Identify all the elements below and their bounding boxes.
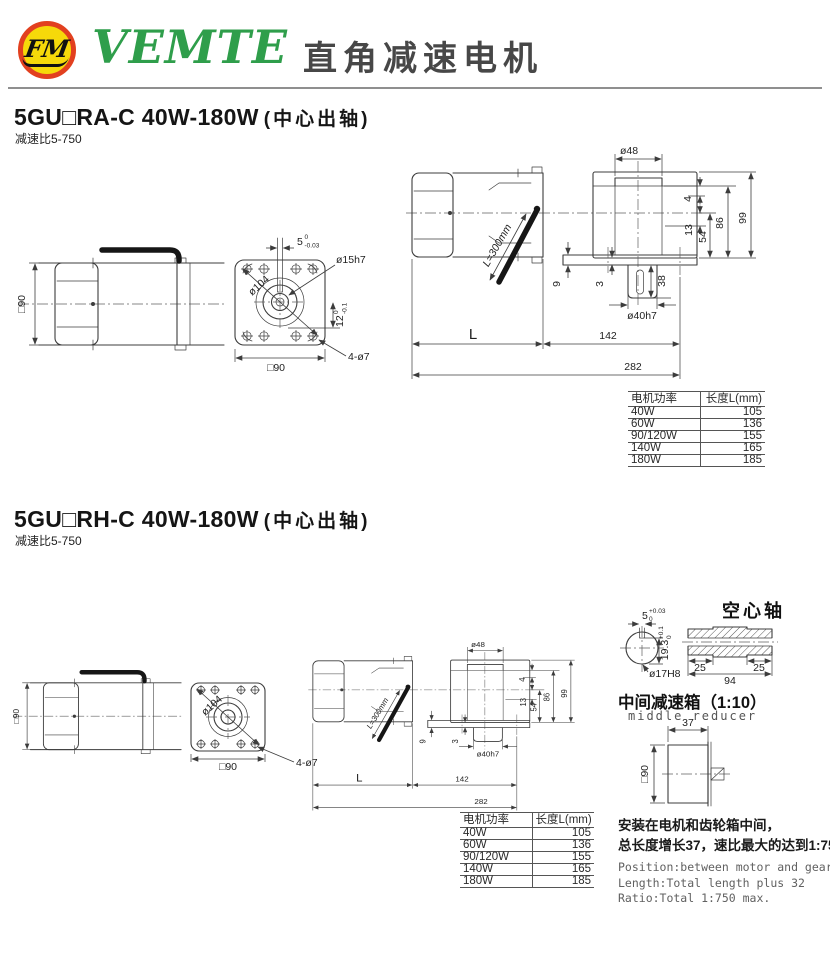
- s1-gearmotor-top-view: L=300mm ø48 4 13 54 86 99 9: [403, 143, 830, 388]
- cell-power: 90/120W: [460, 852, 532, 864]
- table-row: 60W136: [460, 840, 594, 852]
- table-header-row: 电机功率 长度L(mm): [628, 392, 765, 407]
- key-width-dimension: 5 0 -0.03: [266, 234, 320, 250]
- dim-13: 13: [519, 698, 528, 706]
- section1-shaft-type: (中心出轴): [264, 109, 371, 130]
- brand-logo: FM: [18, 21, 76, 79]
- cell-power: 180W: [460, 876, 532, 888]
- cell-length: 185: [700, 455, 765, 467]
- dim-99: 99: [560, 689, 569, 697]
- right-height-dimensions: 4 13 54 86 99: [664, 172, 756, 258]
- flange-size-dimension: □90: [191, 754, 265, 773]
- length-dimensions: L 142 282: [313, 723, 517, 810]
- table-row: 90/120W155: [628, 431, 765, 443]
- dim-94: 94: [724, 675, 736, 687]
- boss-dia-dimension: ø48: [615, 145, 662, 176]
- dim-54: 54: [697, 231, 709, 243]
- dim-4: 4: [682, 196, 694, 202]
- dim-86: 86: [714, 217, 726, 229]
- dim-key-height-tol-low: -0.1: [342, 302, 349, 314]
- power-cable: [379, 685, 410, 740]
- dim-25-right: 25: [753, 662, 765, 674]
- reducer-notes: 安装在电机和齿轮箱中间， 总长度增长37，速比最大的达到1:750 Positi…: [618, 816, 830, 907]
- dim-142: 142: [599, 330, 617, 342]
- cell-power: 90/120W: [628, 431, 700, 443]
- cell-length: 136: [700, 419, 765, 431]
- dim-key-depth-tol-up: +0.1: [658, 626, 665, 639]
- dim-25-left: 25: [694, 662, 706, 674]
- dim-key-width: 5: [642, 610, 648, 622]
- note-cn-2: 总长度增长37，速比最大的达到1:750: [618, 836, 830, 856]
- hollow-shaft-view: 5 +0.03 0 19.3 +0.1 0 ø17H8 25: [616, 588, 830, 688]
- cell-power: 40W: [628, 407, 700, 419]
- cell-power: 140W: [628, 443, 700, 455]
- cell-power: 40W: [460, 828, 532, 840]
- boss-dia-dimension: ø48: [467, 640, 503, 663]
- dim-shaft-dia: ø15h7: [336, 254, 366, 266]
- section2-title: 5GU□RH-C 40W-180W(中心出轴): [14, 506, 370, 533]
- note-en-2: Length:Total length plus 32: [618, 876, 830, 892]
- mount-holes-label: 4-ø7: [319, 340, 370, 363]
- col-power: 电机功率: [460, 813, 532, 828]
- note-en-3: Ratio:Total 1:750 max.: [618, 891, 830, 907]
- s1-length-table: 电机功率 长度L(mm) 40W105 60W136 90/120W155 14…: [628, 391, 765, 467]
- section2-shaft-type: (中心出轴): [264, 511, 371, 532]
- dim-L: L: [469, 326, 477, 343]
- section2-model: 5GU□RH-C 40W-180W: [14, 506, 259, 532]
- dim-frame-size: □90: [11, 709, 21, 724]
- logo-monogram: FM: [21, 34, 72, 67]
- s1-motor-side-view: □90: [14, 235, 230, 370]
- dim-shaft-dia: ø40h7: [627, 310, 657, 322]
- dim-shaft-dia: ø40h7: [477, 750, 500, 759]
- brand-name: VEMTE: [92, 20, 288, 74]
- dim-3: 3: [594, 281, 606, 287]
- dim-9: 9: [418, 739, 427, 743]
- dim-37: 37: [682, 717, 694, 729]
- table-row: 140W165: [628, 443, 765, 455]
- dim-key-height-tol-up: 0: [333, 310, 340, 314]
- table-row: 90/120W155: [460, 852, 594, 864]
- dim-frame-size: □90: [16, 295, 28, 313]
- dim-282: 282: [474, 797, 487, 806]
- dim-key-depth: 19.3: [659, 640, 671, 661]
- dim-bolt-circle: ø104: [246, 273, 272, 298]
- flange-size-dimension: □90: [235, 349, 325, 374]
- motor-outline: [13, 679, 183, 754]
- cell-length: 105: [532, 828, 594, 840]
- dim-key-width-tol-low: -0.03: [305, 243, 320, 250]
- dim-38: 38: [656, 275, 668, 287]
- table-row: 40W105: [628, 407, 765, 419]
- cell-length: 165: [700, 443, 765, 455]
- col-length: 长度L(mm): [700, 392, 765, 407]
- col-power: 电机功率: [628, 392, 700, 407]
- dim-flange-size: □90: [219, 761, 237, 773]
- s2-motor-side-view: □90: [10, 660, 186, 770]
- dim-key-height: 12: [334, 315, 346, 327]
- reducer-frame-dimension: □90: [639, 745, 665, 803]
- section1-title: 5GU□RA-C 40W-180W(中心出轴): [14, 104, 370, 131]
- reducer-outline: [662, 742, 732, 806]
- cell-length: 105: [700, 407, 765, 419]
- table-row: 140W165: [460, 864, 594, 876]
- dim-86: 86: [542, 693, 551, 701]
- dim-flange-size: □90: [267, 362, 285, 374]
- table-row: 180W185: [460, 876, 594, 888]
- table-row: 60W136: [628, 419, 765, 431]
- dim-4: 4: [518, 677, 527, 682]
- cell-length: 155: [532, 852, 594, 864]
- dim-key-width-tol-up: +0.03: [649, 608, 666, 615]
- s2-gearmotor-top-view: L=300mm ø48 4 13 54 86 99 9: [306, 639, 631, 817]
- cell-power: 60W: [628, 419, 700, 431]
- dim-99: 99: [737, 212, 749, 224]
- dim-bore-dia: ø17H8: [649, 668, 681, 680]
- middle-reducer-view: 37 □90: [640, 713, 790, 810]
- key-height-dimension: 12 0 -0.1: [288, 302, 349, 328]
- table-row: 40W105: [460, 828, 594, 840]
- motor-gearbox-outline: [308, 652, 536, 749]
- table-header-row: 电机功率 长度L(mm): [460, 813, 594, 828]
- cell-length: 185: [532, 876, 594, 888]
- dim-L: L: [356, 773, 362, 785]
- note-en-1: Position:between motor and gearbox: [618, 860, 830, 876]
- page-title: 直角减速电机: [303, 31, 543, 80]
- right-height-dimensions: 4 13 54 86 99: [505, 660, 575, 722]
- col-length: 长度L(mm): [532, 813, 594, 828]
- cell-length: 165: [532, 864, 594, 876]
- dim-frame-size: □90: [639, 765, 651, 783]
- section1-model: 5GU□RA-C 40W-180W: [14, 104, 259, 130]
- s1-flange-front-view: 5 0 -0.03 ø15h7 ø104 □90 12 0 -0.1: [230, 228, 415, 376]
- power-cable: [102, 250, 179, 261]
- dim-282: 282: [624, 361, 642, 373]
- dim-key-width-tol-low: 0: [649, 616, 653, 623]
- s2-length-table: 电机功率 长度L(mm) 40W105 60W136 90/120W155 14…: [460, 812, 594, 888]
- dim-13: 13: [683, 224, 695, 236]
- table-row: 180W185: [628, 455, 765, 467]
- shaft-dimensions: ø40h7: [459, 739, 517, 758]
- cell-power: 180W: [628, 455, 700, 467]
- reducer-width-dimension: 37: [668, 717, 708, 742]
- dim-key-width-tol-up: 0: [305, 234, 309, 241]
- catalog-page: FM VEMTE 直角减速电机 5GU□RA-C 40W-180W(中心出轴) …: [0, 0, 830, 964]
- section2-ratio: 减速比5-750: [15, 532, 82, 549]
- cell-length: 136: [532, 840, 594, 852]
- cell-power: 140W: [460, 864, 532, 876]
- dim-54: 54: [529, 702, 538, 711]
- shaft-section-view: 25 25 94: [682, 627, 778, 687]
- shaft-end-view: 5 +0.03 0 19.3 +0.1 0 ø17H8: [620, 608, 681, 680]
- dim-key-depth-tol-low: 0: [666, 635, 673, 639]
- dim-142: 142: [455, 775, 468, 784]
- cell-length: 155: [700, 431, 765, 443]
- motor-outline: [18, 258, 227, 350]
- dim-key-width: 5: [297, 236, 303, 248]
- cell-power: 60W: [460, 840, 532, 852]
- note-cn-1: 安装在电机和齿轮箱中间，: [618, 816, 830, 836]
- header-divider: [8, 87, 822, 89]
- dim-boss-dia: ø48: [471, 640, 485, 649]
- dim-9: 9: [551, 281, 563, 287]
- dim-mount-holes: 4-ø7: [348, 351, 370, 363]
- power-cable: [82, 672, 145, 681]
- dim-boss-dia: ø48: [620, 145, 638, 157]
- section1-ratio: 减速比5-750: [15, 130, 82, 147]
- dim-3: 3: [451, 739, 460, 743]
